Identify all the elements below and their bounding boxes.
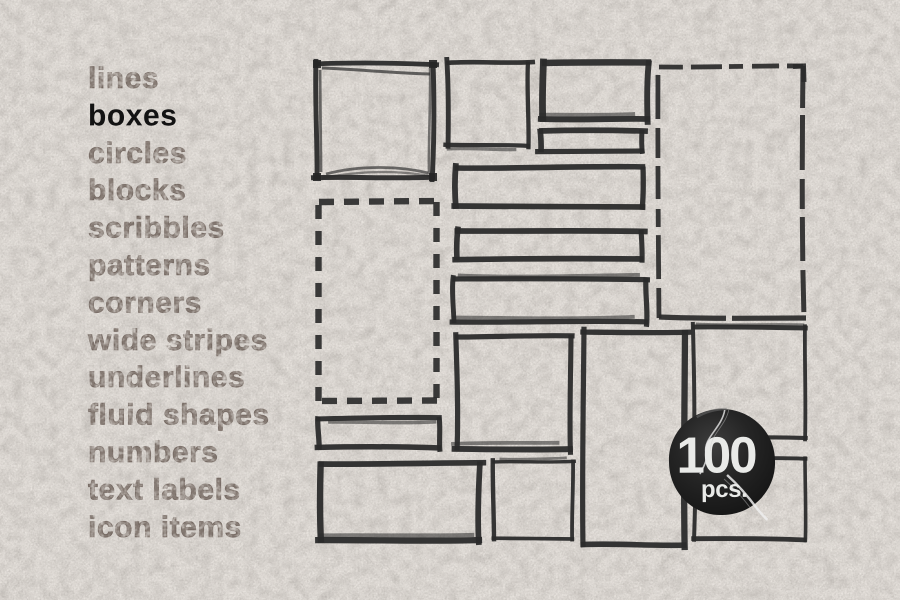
svg-text:circles: circles (88, 137, 187, 170)
svg-text:numbers: numbers (88, 436, 219, 469)
svg-text:lines: lines (88, 62, 159, 95)
svg-text:wide stripes: wide stripes (87, 324, 268, 357)
svg-text:icon items: icon items (88, 511, 242, 544)
svg-text:corners: corners (88, 286, 202, 319)
svg-text:text labels: text labels (88, 473, 241, 506)
svg-text:blocks: blocks (88, 174, 186, 207)
svg-text:patterns: patterns (88, 249, 211, 282)
svg-text:scribbles: scribbles (88, 212, 225, 245)
svg-text:underlines: underlines (88, 361, 245, 394)
svg-text:fluid shapes: fluid shapes (88, 399, 270, 432)
